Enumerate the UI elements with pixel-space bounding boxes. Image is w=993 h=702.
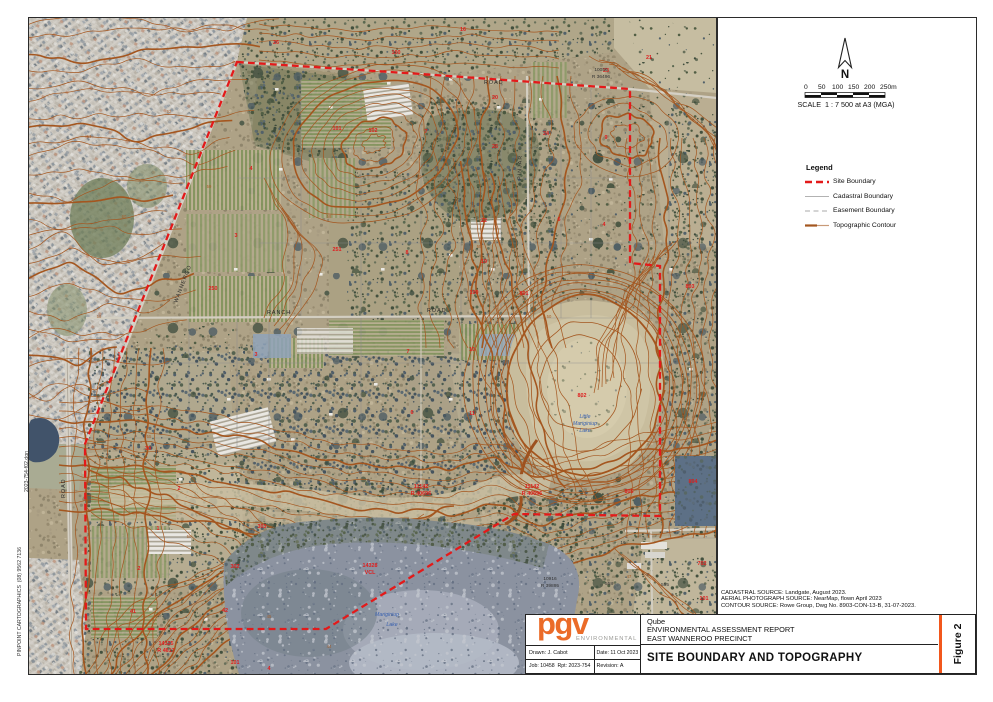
svg-text:2: 2 [178,486,181,492]
svg-text:30: 30 [145,446,151,452]
svg-text:3: 3 [235,233,238,239]
svg-text:3: 3 [255,352,258,358]
svg-text:60: 60 [417,174,422,179]
svg-text:20: 20 [492,95,498,101]
svg-text:R 40696: R 40696 [411,491,431,497]
svg-text:803: 803 [686,284,695,290]
svg-text:100: 100 [392,50,401,56]
svg-text:805: 805 [625,489,634,495]
svg-text:7: 7 [407,349,410,355]
svg-text:11: 11 [469,411,475,417]
svg-text:ROAD: ROAD [484,80,504,86]
svg-text:26: 26 [492,144,498,150]
svg-text:4: 4 [603,222,606,228]
svg-text:555: 555 [661,582,669,588]
svg-text:ROAD: ROAD [61,478,67,498]
svg-text:4: 4 [250,166,253,172]
svg-text:19: 19 [481,259,487,265]
svg-text:45: 45 [267,614,272,619]
svg-text:26: 26 [273,40,279,46]
svg-text:101: 101 [333,126,342,132]
svg-text:802: 802 [578,393,587,399]
svg-text:7: 7 [425,129,428,135]
svg-text:RANCH: RANCH [267,310,291,316]
svg-text:ROAD: ROAD [427,308,447,314]
svg-text:59: 59 [207,184,212,189]
svg-text:101: 101 [700,596,709,602]
svg-text:250: 250 [209,286,218,292]
svg-text:R 36496: R 36496 [592,74,610,80]
svg-text:52: 52 [637,194,642,199]
svg-text:4: 4 [268,666,271,672]
svg-text:16: 16 [620,540,626,546]
svg-text:Lake: Lake [386,622,397,628]
svg-text:14325: 14325 [159,641,174,647]
svg-text:24: 24 [543,131,549,137]
svg-text:801: 801 [520,291,529,297]
svg-text:2: 2 [138,566,141,572]
svg-text:10: 10 [469,347,475,353]
svg-text:50: 50 [187,534,192,539]
svg-text:58: 58 [327,214,332,219]
svg-text:804: 804 [689,479,698,485]
svg-text:VCL: VCL [365,570,376,576]
svg-text:101: 101 [231,660,240,666]
svg-text:16: 16 [460,27,466,33]
svg-text:Mariginiup: Mariginiup [573,421,597,427]
svg-text:PINJAR: PINJAR [517,155,524,180]
svg-text:558: 558 [605,581,613,587]
svg-text:55: 55 [477,244,482,249]
svg-text:42: 42 [222,608,228,614]
svg-text:54: 54 [577,144,582,149]
svg-text:55: 55 [147,434,152,439]
svg-text:62: 62 [167,109,172,114]
svg-text:50: 50 [547,314,552,319]
svg-text:R 40696: R 40696 [522,491,542,497]
svg-text:21: 21 [646,55,652,61]
svg-text:48: 48 [277,494,282,499]
svg-text:41: 41 [130,609,136,615]
svg-text:46: 46 [377,484,382,489]
svg-text:60: 60 [122,214,127,219]
svg-text:58: 58 [97,314,102,319]
svg-text:Mariginiup: Mariginiup [375,612,399,618]
svg-text:Lake: Lake [579,428,590,434]
svg-text:302: 302 [231,564,240,570]
svg-text:1: 1 [157,526,160,532]
svg-text:Little: Little [580,414,591,420]
svg-text:8: 8 [406,250,409,256]
svg-text:48: 48 [677,334,682,339]
svg-text:R 4617: R 4617 [157,648,174,654]
svg-text:22: 22 [481,218,487,224]
svg-text:R 39895: R 39895 [541,583,559,589]
svg-text:47: 47 [627,574,632,579]
svg-text:11142: 11142 [525,484,539,490]
svg-text:63: 63 [87,134,92,139]
svg-text:6: 6 [558,217,561,223]
svg-text:303: 303 [258,524,267,530]
svg-text:14328: 14328 [363,563,378,569]
svg-text:100: 100 [470,290,479,296]
svg-text:702: 702 [698,561,707,567]
svg-text:6: 6 [411,410,414,416]
svg-text:251: 251 [333,247,342,253]
svg-text:9: 9 [605,135,608,141]
svg-text:58: 58 [457,104,462,109]
svg-text:45: 45 [497,464,502,469]
svg-text:1: 1 [118,352,121,358]
svg-text:11142: 11142 [414,484,428,490]
svg-text:102: 102 [369,128,378,134]
svg-text:10916: 10916 [543,576,557,582]
svg-text:44: 44 [327,644,332,649]
svg-text:10056: 10056 [594,67,608,73]
